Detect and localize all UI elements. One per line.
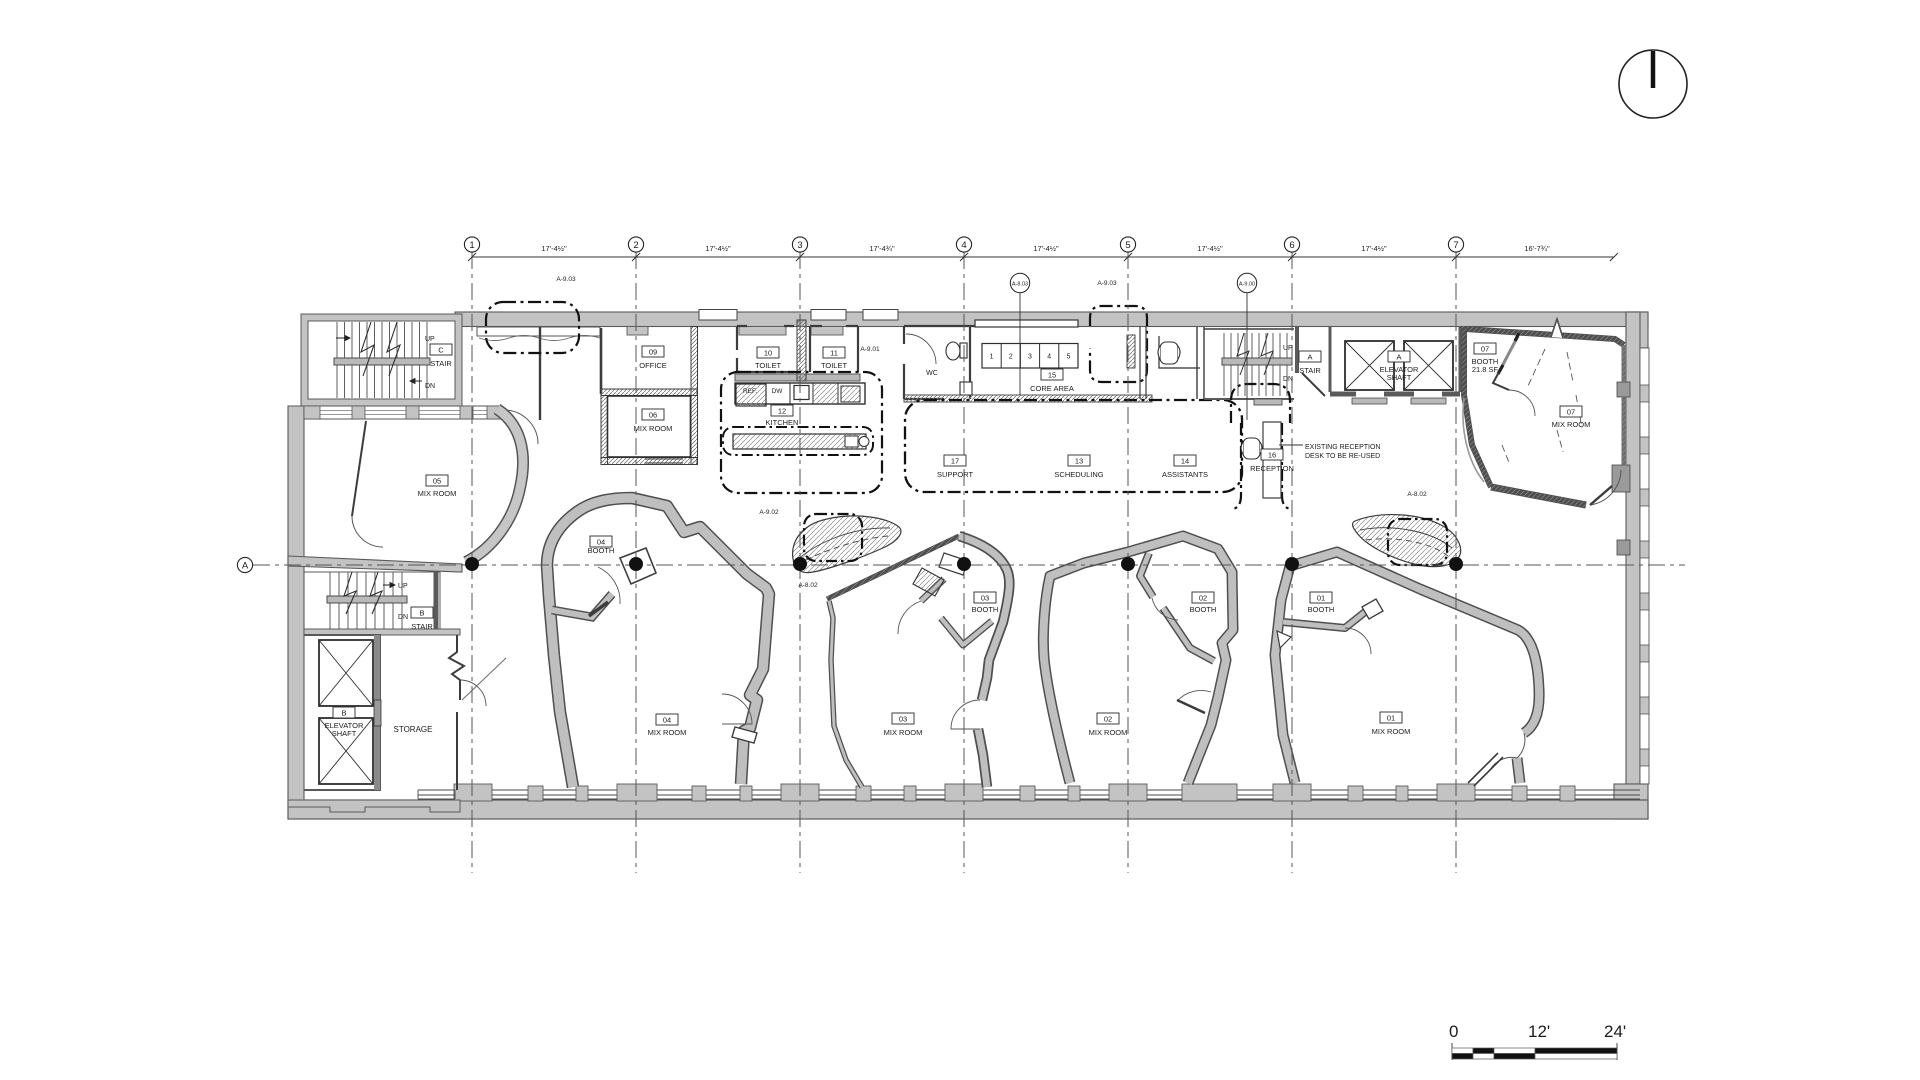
svg-text:MIX ROOM: MIX ROOM bbox=[648, 728, 687, 737]
svg-text:1: 1 bbox=[469, 240, 474, 251]
svg-text:17: 17 bbox=[951, 457, 959, 466]
svg-text:7: 7 bbox=[1453, 240, 1458, 251]
svg-text:B: B bbox=[341, 709, 346, 718]
svg-text:MIX ROOM: MIX ROOM bbox=[418, 489, 457, 498]
svg-text:A-9.01: A-9.01 bbox=[860, 346, 880, 353]
svg-text:07: 07 bbox=[1567, 408, 1575, 417]
svg-text:UP: UP bbox=[398, 583, 408, 590]
svg-text:2: 2 bbox=[1009, 354, 1013, 361]
svg-text:03: 03 bbox=[899, 715, 907, 724]
svg-text:17'-4½": 17'-4½" bbox=[1361, 244, 1387, 253]
svg-text:4: 4 bbox=[961, 240, 966, 251]
svg-text:CORE AREA: CORE AREA bbox=[1030, 384, 1074, 393]
svg-text:A-8.02: A-8.02 bbox=[798, 582, 818, 589]
svg-text:STORAGE: STORAGE bbox=[394, 725, 433, 734]
svg-text:12: 12 bbox=[778, 407, 786, 416]
svg-text:DESK TO BE RE-USED: DESK TO BE RE-USED bbox=[1305, 453, 1380, 460]
svg-text:SHAFT: SHAFT bbox=[1387, 373, 1412, 382]
svg-text:STAIR: STAIR bbox=[430, 359, 452, 368]
svg-text:WC: WC bbox=[926, 370, 938, 377]
svg-text:BOOTH: BOOTH bbox=[1190, 605, 1217, 614]
svg-text:06: 06 bbox=[649, 411, 657, 420]
svg-text:DW: DW bbox=[772, 388, 784, 395]
svg-text:3: 3 bbox=[1028, 354, 1032, 361]
svg-text:24': 24' bbox=[1604, 1022, 1626, 1041]
svg-text:B: B bbox=[419, 609, 424, 618]
svg-text:17'-4½": 17'-4½" bbox=[1197, 244, 1223, 253]
svg-text:STAIR: STAIR bbox=[411, 622, 433, 631]
svg-text:BOOTH: BOOTH bbox=[972, 605, 999, 614]
svg-text:KITCHEN: KITCHEN bbox=[766, 418, 799, 427]
svg-text:5: 5 bbox=[1066, 354, 1070, 361]
svg-text:DN: DN bbox=[425, 383, 435, 390]
svg-text:17'-4½": 17'-4½" bbox=[705, 244, 731, 253]
svg-text:TOILET: TOILET bbox=[821, 361, 848, 370]
svg-text:C: C bbox=[438, 346, 444, 355]
svg-text:MIX ROOM: MIX ROOM bbox=[1372, 727, 1411, 736]
svg-text:0: 0 bbox=[1449, 1022, 1458, 1041]
svg-text:UP: UP bbox=[425, 336, 435, 343]
svg-text:4: 4 bbox=[1047, 354, 1051, 361]
svg-text:A: A bbox=[1307, 353, 1312, 362]
svg-text:SUPPORT: SUPPORT bbox=[937, 470, 974, 479]
svg-text:02: 02 bbox=[1199, 594, 1207, 603]
svg-text:10: 10 bbox=[764, 349, 772, 358]
svg-text:EXISTING RECEPTION: EXISTING RECEPTION bbox=[1305, 444, 1380, 451]
svg-text:A: A bbox=[242, 561, 249, 572]
svg-text:ASSISTANTS: ASSISTANTS bbox=[1162, 470, 1208, 479]
svg-text:RECEPTION: RECEPTION bbox=[1250, 464, 1294, 473]
svg-text:16'-7¾": 16'-7¾" bbox=[1524, 244, 1550, 253]
svg-text:11: 11 bbox=[830, 349, 838, 358]
svg-text:05: 05 bbox=[433, 477, 441, 486]
svg-text:17'-4¾": 17'-4¾" bbox=[869, 244, 895, 253]
svg-text:3: 3 bbox=[797, 240, 802, 251]
svg-text:1: 1 bbox=[990, 354, 994, 361]
svg-text:6: 6 bbox=[1289, 240, 1294, 251]
svg-text:A-9.03: A-9.03 bbox=[556, 276, 576, 283]
svg-text:TOILET: TOILET bbox=[755, 361, 782, 370]
svg-text:07: 07 bbox=[1481, 345, 1489, 354]
svg-text:BOOTH: BOOTH bbox=[1308, 605, 1335, 614]
svg-text:01: 01 bbox=[1317, 594, 1325, 603]
svg-text:15: 15 bbox=[1048, 371, 1056, 380]
svg-text:16: 16 bbox=[1268, 451, 1276, 460]
svg-text:MIX ROOM: MIX ROOM bbox=[1552, 420, 1591, 429]
svg-text:09: 09 bbox=[649, 348, 657, 357]
svg-text:21.8 SF: 21.8 SF bbox=[1472, 365, 1499, 374]
svg-text:02: 02 bbox=[1104, 715, 1112, 724]
svg-text:A: A bbox=[1396, 353, 1401, 362]
svg-text:A-9.00: A-9.00 bbox=[1239, 282, 1255, 288]
svg-text:DN: DN bbox=[1283, 376, 1293, 383]
svg-text:REF.: REF. bbox=[743, 388, 757, 395]
svg-text:17'-4½": 17'-4½" bbox=[541, 244, 567, 253]
svg-text:01: 01 bbox=[1387, 714, 1395, 723]
svg-text:17'-4½": 17'-4½" bbox=[1033, 244, 1059, 253]
svg-text:12': 12' bbox=[1528, 1022, 1550, 1041]
svg-text:SHAFT: SHAFT bbox=[332, 729, 357, 738]
svg-text:MIX ROOM: MIX ROOM bbox=[1089, 728, 1128, 737]
svg-text:14: 14 bbox=[1181, 457, 1189, 466]
svg-text:DN: DN bbox=[398, 614, 408, 621]
svg-text:MIX ROOM: MIX ROOM bbox=[634, 424, 673, 433]
svg-text:13: 13 bbox=[1075, 457, 1083, 466]
svg-text:UP: UP bbox=[1283, 345, 1293, 352]
svg-text:A-8.02: A-8.02 bbox=[1407, 491, 1427, 498]
svg-text:A-9.03: A-9.03 bbox=[1097, 280, 1117, 287]
svg-text:OFFICE: OFFICE bbox=[639, 361, 667, 370]
svg-text:A-8.03: A-8.03 bbox=[1012, 282, 1028, 288]
svg-text:2: 2 bbox=[633, 240, 638, 251]
svg-text:A-9.02: A-9.02 bbox=[759, 509, 779, 516]
svg-text:STAIR: STAIR bbox=[1299, 366, 1321, 375]
svg-text:04: 04 bbox=[663, 716, 671, 725]
svg-text:MIX ROOM: MIX ROOM bbox=[884, 728, 923, 737]
svg-text:SCHEDULING: SCHEDULING bbox=[1054, 470, 1103, 479]
svg-text:03: 03 bbox=[981, 594, 989, 603]
svg-text:BOOTH: BOOTH bbox=[588, 546, 615, 555]
svg-text:5: 5 bbox=[1125, 240, 1130, 251]
